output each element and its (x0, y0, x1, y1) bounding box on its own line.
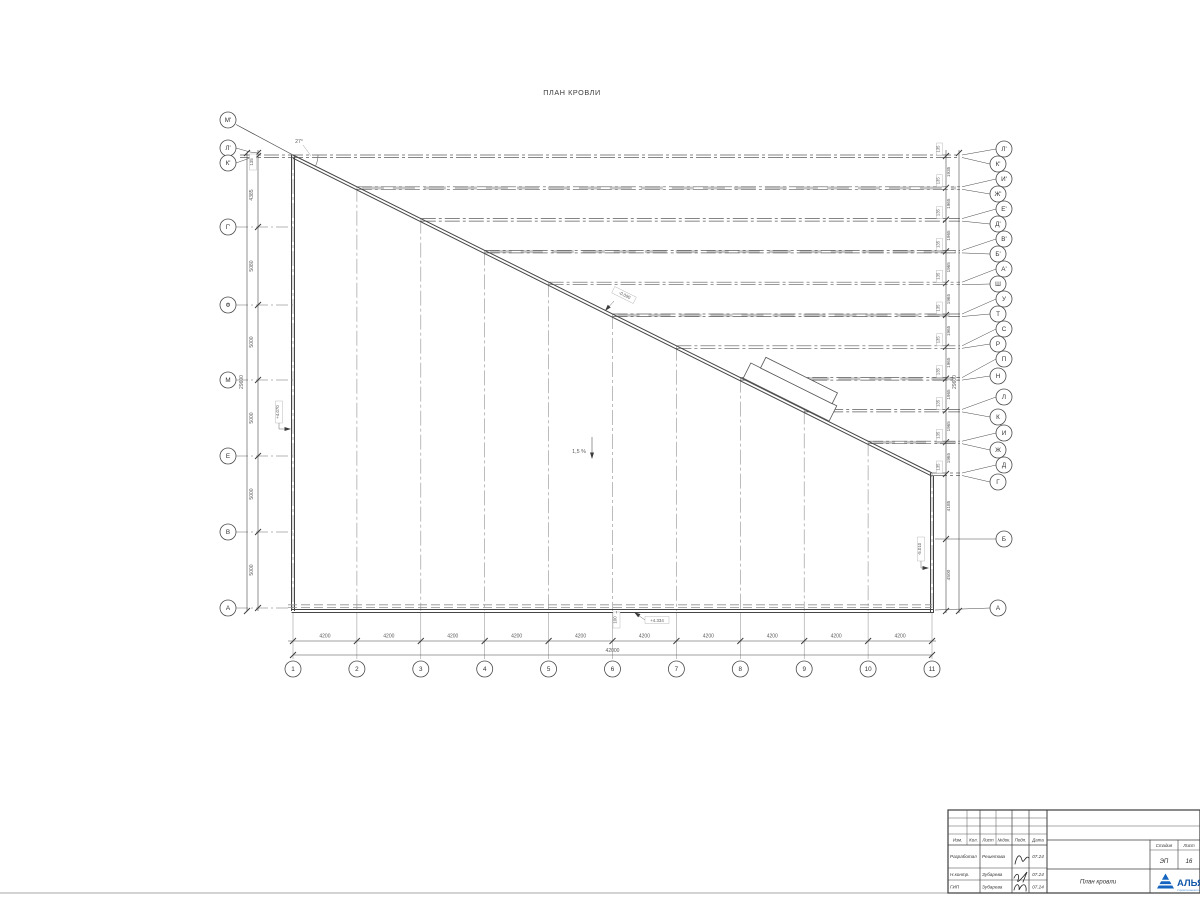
axis-leader (962, 397, 996, 409)
tb-col-izm: Изм. (953, 838, 962, 843)
dim-label: 135 (936, 208, 941, 216)
axis-leader (962, 179, 996, 187)
dim-label: 1965 (946, 294, 951, 305)
dim-label: 5000 (249, 336, 255, 347)
dim-label: 135 (936, 431, 941, 439)
angle-label: 27° (295, 139, 303, 145)
axis-leader (962, 239, 996, 250)
axis-label: С (1002, 326, 1007, 333)
tb-stage-label: Стадия (1156, 843, 1173, 848)
axis-label: И (1002, 430, 1007, 437)
tb-role-3: ГИП (950, 885, 960, 890)
roof-plan-drawing: М'Л'К'Г'ФМЕВА135438550805000500050005000… (220, 112, 1012, 677)
axis-label: 5 (547, 666, 551, 673)
roof-plan-canvas: ПЛАН КРОВЛИ М'Л'К'Г'ФМЕВА135438550805000… (0, 0, 1200, 900)
tb-name-2: Зубарева (982, 872, 1003, 877)
dim-label: 135 (936, 367, 941, 375)
tb-stage-value: ЭП (1160, 859, 1169, 865)
axis-label: Е' (1001, 206, 1006, 213)
axis-label: 4 (483, 666, 487, 673)
dim-label: 135 (249, 158, 254, 166)
leader-arrow (923, 566, 930, 570)
axis-label: Г (996, 479, 1000, 486)
drawing-title: ПЛАН КРОВЛИ (543, 88, 600, 97)
axis-label: К' (996, 161, 1001, 168)
tb-col-kol: Кол. (969, 838, 978, 843)
dim-label: 135 (936, 463, 941, 471)
dim-label: 5000 (249, 564, 255, 575)
dim-label: 1965 (946, 230, 951, 241)
axis-label: Л' (225, 145, 230, 152)
dim-label: 1965 (946, 325, 951, 336)
dim-label: 29600 (239, 375, 245, 389)
axis-label: К (996, 414, 1000, 421)
axis-leader (962, 433, 996, 441)
axis-label: Ф (226, 302, 231, 309)
drawing-sheet: ПЛАН КРОВЛИ М'Л'К'Г'ФМЕВА135438550805000… (0, 0, 1200, 900)
axis-label: Р (996, 341, 1000, 348)
axis-label: Т (996, 311, 1000, 318)
axis-leader (962, 465, 996, 473)
axis-label: Л' (1001, 146, 1006, 153)
dim-label: 1935 (946, 166, 951, 177)
dim-label: 4200 (319, 634, 330, 640)
axis-label: 2 (355, 666, 359, 673)
axis-label: 6 (611, 666, 615, 673)
dim-label: 5080 (249, 260, 255, 271)
axis-leader (962, 284, 990, 285)
signature-2 (1014, 872, 1027, 882)
logo-subtext: строительная компания (1177, 888, 1200, 892)
signature-1 (1015, 856, 1029, 864)
axis-label: Ш (995, 281, 1001, 288)
tb-role-1: Разработал (950, 854, 977, 859)
dim-label: 1965 (946, 421, 951, 432)
axis-label: Н (996, 373, 1001, 380)
axis-leader (962, 209, 996, 219)
tb-col-list: Лист (981, 838, 994, 843)
axis-label: 11 (929, 666, 936, 673)
axis-label: В' (1001, 236, 1006, 243)
tb-col-ndok: №док. (998, 838, 1011, 843)
axis-label: В (226, 529, 230, 536)
axis-label: Е (226, 453, 230, 460)
leader-arrow (590, 453, 594, 460)
dim-label: 4200 (639, 634, 650, 640)
edge-dim-label: 100 (613, 616, 618, 624)
tb-sheet-label: Лист (1182, 843, 1195, 848)
dim-label: 29600 (952, 375, 958, 389)
axis-leader (962, 412, 990, 417)
dim-label: 1965 (946, 389, 951, 400)
tb-col-data: Дата (1031, 838, 1044, 843)
axis-label: 3 (419, 666, 423, 673)
axis-label: Б' (995, 251, 1000, 258)
tb-col-podp: Подп. (1015, 838, 1027, 843)
tb-doc-title: План кровли (1080, 879, 1117, 886)
axis-label: И' (1001, 176, 1007, 183)
axis-label: 7 (675, 666, 679, 673)
dim-label: 4200 (447, 634, 458, 640)
axis-label: 9 (802, 666, 806, 673)
axis-leader (962, 314, 990, 317)
tb-role-2: Н.контр. (950, 872, 969, 877)
tb-date-2: 07.24 (1032, 872, 1044, 877)
leader-arrow (633, 610, 641, 617)
slope-label: 1,5 % (572, 449, 586, 455)
axis-leader (962, 189, 990, 194)
axis-label: К' (226, 160, 231, 167)
axis-label: Ж (995, 447, 1001, 454)
dim-label: 4200 (831, 634, 842, 640)
axis-leader (962, 149, 996, 155)
dim-label: 4200 (511, 634, 522, 640)
dim-label: 4200 (383, 634, 394, 640)
title-block: Изм. Кол. Лист №док. Подп. Дата Разработ… (948, 810, 1200, 893)
dim-label: 1965 (946, 357, 951, 368)
elevation-bottom: +4.334 (650, 618, 664, 623)
dim-label: 135 (936, 399, 941, 407)
dim-label: 5000 (249, 488, 255, 499)
dim-label: 4500 (946, 569, 952, 580)
dim-label: 4200 (894, 634, 905, 640)
axis-label: А' (1001, 266, 1006, 273)
dim-label: 1965 (946, 198, 951, 209)
tb-sheet-value: 16 (1186, 859, 1193, 865)
dim-label: 4385 (249, 189, 255, 200)
axis-label: 10 (865, 666, 873, 673)
axis-label: Д (1002, 462, 1007, 469)
dim-label: 135 (936, 336, 941, 344)
elevation-right: -5.010 (917, 542, 922, 555)
tb-date-3: 07.24 (1032, 885, 1044, 890)
tb-date-1: 07.24 (1032, 854, 1044, 859)
dim-label: 1965 (946, 453, 951, 464)
dim-label: 135 (936, 177, 941, 185)
axis-label: 8 (739, 666, 743, 673)
axis-leader (962, 376, 990, 380)
axis-label: Д' (995, 221, 1000, 228)
axis-leader (962, 444, 990, 450)
axis-label: Б (1002, 536, 1006, 543)
tb-name-1: Решетова (982, 854, 1006, 859)
axis-label: М (225, 377, 230, 384)
tb-name-3: Зубарева (982, 885, 1003, 890)
dim-label: 4200 (703, 634, 714, 640)
leader-arrow (285, 427, 292, 431)
axis-leader (935, 608, 990, 610)
dim-label: 135 (936, 272, 941, 280)
elevation-left: +4.070 (275, 405, 280, 419)
signature-3 (1014, 885, 1026, 891)
dim-label: 135 (936, 304, 941, 312)
dim-label: 4185 (946, 500, 952, 511)
dim-label: 135 (936, 240, 941, 248)
dim-label: 4200 (767, 634, 778, 640)
axis-leader (962, 221, 990, 224)
axis-label: М' (225, 117, 231, 124)
axis-leader (250, 152, 258, 153)
axis-leader (962, 253, 990, 254)
dim-label: 5000 (249, 412, 255, 423)
axis-leader (962, 476, 990, 483)
dim-label: 42000 (606, 648, 620, 654)
axis-leader (962, 158, 990, 165)
axis-label: П (1002, 356, 1007, 363)
dim-label: 4200 (575, 634, 586, 640)
axis-leader (236, 158, 250, 163)
axis-leader (962, 344, 990, 348)
dim-label: 1965 (946, 262, 951, 273)
axis-label: 1 (291, 666, 295, 673)
angle-arc (315, 155, 318, 166)
axis-label: Л (1002, 394, 1006, 401)
axis-label: Г' (226, 224, 231, 231)
dim-label: 135 (936, 145, 941, 153)
angle-leader (303, 145, 311, 156)
axis-label: Ж' (994, 191, 1001, 198)
